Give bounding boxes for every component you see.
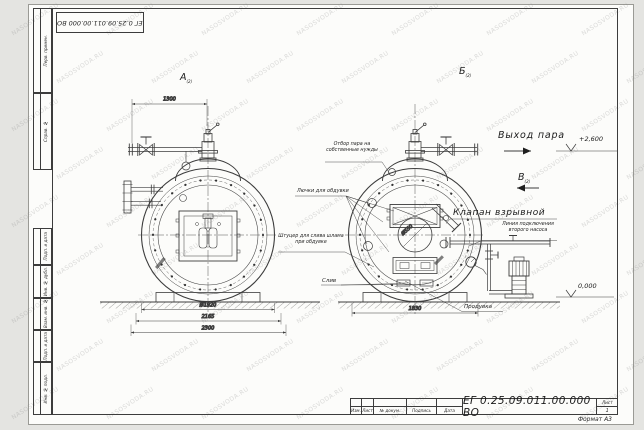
annotation-steam-out: Выход пара xyxy=(498,130,565,142)
view-label-v: В(2) xyxy=(518,172,530,184)
annotation-explosion-valve: Клапан взрывной xyxy=(453,208,545,219)
annotation-blowdown: Продувка xyxy=(464,304,492,311)
annotation-drain: Слив xyxy=(322,278,336,285)
annotation-sludge-fitting: Штуцер для слива шламапри обдувке xyxy=(276,234,346,246)
annotation-hatches: Лючки для обдувки xyxy=(297,188,349,194)
tb-col-docnum: № докум. xyxy=(374,407,407,415)
drawing-sheet: NASOSVODA.RUNASOSVODA.RUNASOSVODA.RUNASO… xyxy=(0,0,644,430)
boiler-drawing: 1300 Ø1920 2165 2300 xyxy=(0,0,644,430)
tb-col-izm: Изм. xyxy=(351,407,362,415)
svg-text:2300: 2300 xyxy=(202,326,215,332)
format-label: Формат А3 xyxy=(500,416,612,423)
annotation-leaders xyxy=(278,144,617,312)
annotation-steam-tap: Отбор пара насобственные нужды xyxy=(320,142,384,154)
annotation-pump-line: Линия подключениявторого насоса xyxy=(496,222,560,234)
tb-doc-number: ЕГ 0.25.09.011.00.000 ВО xyxy=(463,399,597,415)
svg-text:1830: 1830 xyxy=(409,306,422,312)
svg-text:1300: 1300 xyxy=(163,97,176,103)
left-vessel-view xyxy=(100,106,320,314)
view-label-b: Б(2) xyxy=(459,66,471,78)
svg-text:2165: 2165 xyxy=(202,314,215,320)
tb-col-podpis: Подпись xyxy=(407,407,437,415)
title-block: Изм. Лист № докум. Подпись Дата ЕГ 0.25.… xyxy=(350,398,618,415)
elevation-top: +2,600 xyxy=(579,135,603,143)
view-label-a: А(2) xyxy=(180,72,192,84)
svg-text:Ø1920: Ø1920 xyxy=(199,302,217,309)
tb-sheet-label: Лист xyxy=(597,399,618,407)
tb-col-list: Лист xyxy=(362,407,374,415)
elevation-zero: 0,000 xyxy=(578,282,597,290)
tb-sheet-number: 1 xyxy=(597,407,618,415)
pump-piping xyxy=(446,236,550,299)
tb-col-data: Дата xyxy=(437,407,463,415)
